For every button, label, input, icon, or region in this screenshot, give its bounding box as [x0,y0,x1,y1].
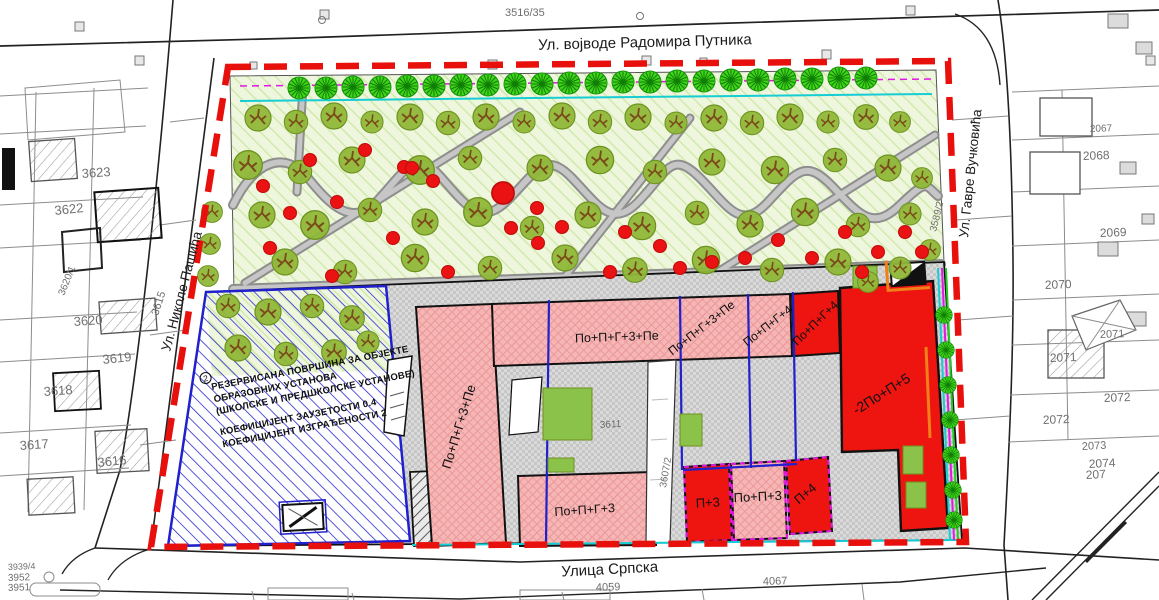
tree [358,198,381,221]
streettree [855,67,877,89]
tree [473,104,499,130]
street-name-bottom: Улица Српска [561,558,659,580]
tree [699,149,725,175]
tree [665,112,687,134]
reddot [556,221,569,234]
tree [791,198,818,225]
reddot [284,207,297,220]
urban-plan-map: Ул. војводе Радомира Путника Ул. Николе … [0,0,1159,600]
reddot [619,226,632,239]
reddot [806,252,819,265]
tree [527,155,553,181]
streettree [477,74,499,96]
tree [823,148,846,171]
tree [889,257,911,279]
tree [478,256,501,279]
tree [625,104,651,130]
building-storey-label: По+П+3 [733,488,782,506]
reddot [387,232,400,245]
reddot [674,262,687,275]
streettree [720,69,742,91]
tree [912,168,933,189]
tree [300,294,323,317]
streettree [938,342,955,359]
parcel-number: 3617 [19,436,49,453]
streettree [693,70,715,92]
streettree [801,68,823,90]
parcel-number: 2070 [1045,277,1072,292]
tree [458,146,481,169]
reddot [326,270,339,283]
tree [249,202,275,228]
tree [817,111,839,133]
tree [412,209,438,235]
streettree [315,77,337,99]
tree [740,111,763,134]
tree [623,258,648,283]
tree [361,111,383,133]
parcel-number: 2071 [1050,350,1077,365]
tree [234,151,263,180]
tree [401,244,428,271]
parcel-number: 3622 [54,200,84,218]
streettree [774,68,796,90]
tree [301,211,330,240]
tree [198,266,219,287]
parcel-number: 3620 [73,312,103,329]
tree [685,201,708,224]
reddot [916,246,929,259]
streettree [369,76,391,98]
parcel-number: 3616 [97,452,127,470]
tree [701,105,727,131]
parcel-number: 2071 [1100,328,1125,341]
tree [643,160,666,183]
streettree [945,482,962,499]
streettree [585,72,607,94]
streettree [504,73,526,95]
street-name-left: Ул. Николе Пашића [158,229,205,353]
streettree [940,377,957,394]
parcel-number: 3623 [81,164,111,181]
parcel-number: 3951 [8,582,31,594]
tree [513,111,535,133]
parcel-number: 4059 [596,581,621,594]
streettree [423,75,445,97]
tree [397,104,423,130]
tree [825,249,851,275]
parcel-number: 207 [1085,467,1106,482]
tree [761,156,788,183]
parcel-number: 3615 [149,290,168,317]
streettree [936,307,953,324]
tree [272,249,298,275]
parcel-number: 3939/4 [8,561,36,572]
reddot [427,175,440,188]
internal-path [646,360,676,543]
tree [520,216,543,239]
streettree [342,76,364,98]
streettree [942,412,959,429]
parcel-number: 3619 [102,349,132,367]
streettree [946,512,963,529]
tree [777,104,803,130]
parcel-number: 2069 [1100,225,1127,240]
streettree [747,69,769,91]
tree [274,342,297,365]
parcel-number: 2072 [1104,390,1131,405]
tree [340,306,365,331]
tree [586,146,613,173]
parcel-number: 2072 [1043,412,1070,427]
streettree [450,74,472,96]
reddot [442,266,455,279]
streettree [531,73,553,95]
reddot [839,226,852,239]
tree [890,112,911,133]
streettree [396,75,418,97]
street-name-top: Ул. војводе Радомира Путника [538,31,753,54]
tree [255,299,281,325]
reddot [492,182,514,204]
reddot [899,226,912,239]
tree [464,198,493,227]
reddot [872,246,885,259]
tree [875,155,901,181]
tree [575,202,601,228]
parcel-number: 3516/35 [505,7,545,19]
parcel-number: 3620/1 [57,264,79,297]
reddot [604,266,617,279]
streettree [612,71,634,93]
streettree [943,447,960,464]
existing-building-solid [2,148,15,190]
tree [854,105,879,130]
tree [245,105,271,131]
building-storey-label: П+3 [695,494,720,510]
streettree [828,67,850,89]
streettree [639,71,661,93]
tree [552,245,578,271]
tree [760,258,783,281]
tree [216,294,239,317]
parcel-number: 3611 [600,419,622,431]
reddot [264,242,277,255]
parcel-number: 4067 [763,575,788,588]
parcel-number: 2067 [1090,123,1113,135]
reddot [654,240,667,253]
reddot [739,252,752,265]
tree [549,103,575,129]
reddot [331,196,344,209]
reddot [856,266,869,279]
reddot [505,222,518,235]
trafo-station-school-icon [279,500,327,534]
reddot [532,237,545,250]
reddot [406,162,419,175]
reddot [359,144,372,157]
streettree [288,77,310,99]
building-storey-label: По+П+Г+3+Пе [575,329,659,346]
parcel-number: 3618 [43,382,73,399]
tree [588,110,611,133]
reddot [772,234,785,247]
tree [284,110,307,133]
reddot [257,180,270,193]
tree [737,211,763,237]
reddot [304,154,317,167]
parcel-number: 2068 [1083,148,1110,163]
tree [436,111,459,134]
tree [225,335,251,361]
reddot [531,202,544,215]
parcel-number: 2073 [1082,440,1107,453]
streettree [558,72,580,94]
plan-canvas: Ул. војводе Радомира Путника Ул. Николе … [0,0,1159,600]
reddot [706,256,719,269]
tree [899,203,921,225]
streettree [666,70,688,92]
tree [321,103,347,129]
tree [628,212,655,239]
